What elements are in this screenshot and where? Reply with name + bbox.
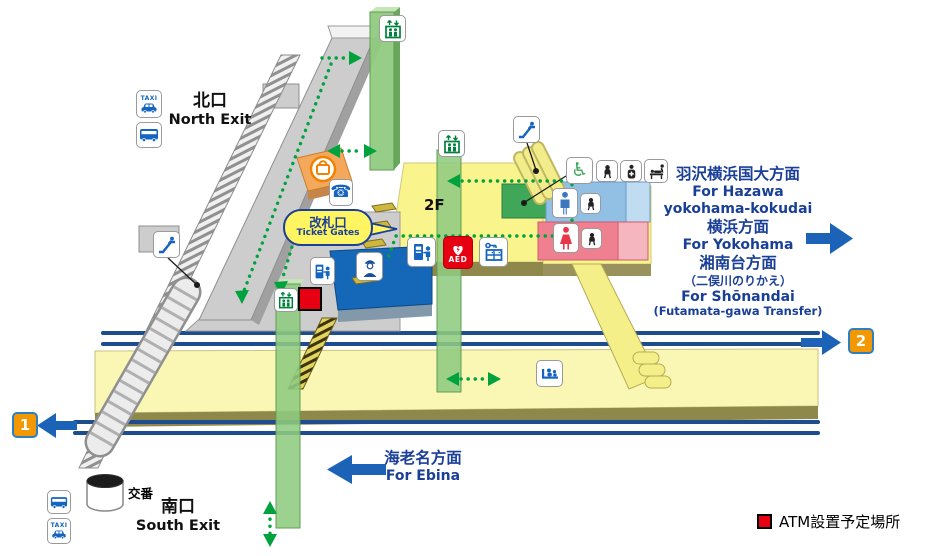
ticket-machine-icon [310,257,335,285]
station-staff-icon [356,252,383,281]
north-exit-label: 北口 North Exit [158,92,262,129]
ostomate-icon [620,160,642,182]
coin-locker-icon [479,237,508,267]
taxi-icon: TAXI [47,518,71,544]
platform-1-badge: 1 [12,412,38,438]
aed-icon: AED [443,236,473,269]
bus-icon [47,490,71,514]
platform-2-badge: 2 [848,328,874,354]
atm-legend-swatch [757,514,772,529]
elevator-icon-center [438,130,465,157]
koban-label: 交番 [128,483,153,502]
baby-seat-icon [581,228,602,249]
baby-seat-icon [596,160,618,182]
atm-planned-marker [298,287,322,311]
escalator-icon-northeast [513,116,540,143]
wheelchair-icon: ♿ [566,157,593,184]
ticket-machine-icon [407,237,436,267]
track-lower [75,422,818,433]
mens-toilet-icon [552,188,578,218]
atm-legend-label: ATM設置予定場所 [779,511,900,532]
baby-seat-icon [580,193,601,214]
elevator-icon-south [274,288,298,312]
phone-icon: ☎ [329,179,353,206]
floor-label: 2F [424,196,445,214]
east-directions: 羽沢横浜国大方面 For Hazawa yokohama-kokudai 横浜方… [650,165,826,319]
ticket-gates-callout: 改札口 Ticket Gates [283,209,373,246]
ebina-direction: 海老名方面 For Ebina [363,449,483,485]
police-box [87,475,123,512]
womens-toilet-icon [553,223,579,253]
station-map: 北口 North Exit 南口 South Exit 交番 2F 改札口 Ti… [0,0,940,556]
elevator-icon-north [379,15,406,42]
escalator-icon [153,231,180,258]
bench-icon [536,360,563,387]
south-exit-label: 南口 South Exit [122,498,234,535]
arrow-platform1 [37,413,77,438]
